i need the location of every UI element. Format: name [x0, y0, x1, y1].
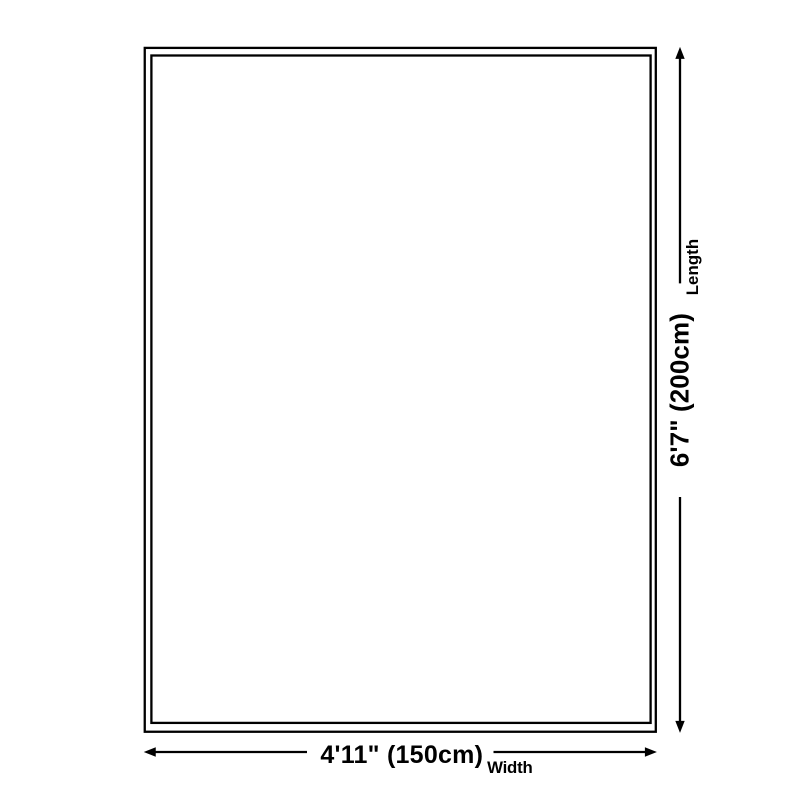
svg-text:Width: Width — [487, 758, 532, 777]
svg-text:4'11" (150cm): 4'11" (150cm) — [320, 741, 483, 769]
svg-text:Length: Length — [683, 239, 702, 296]
svg-text:6'7" (200cm): 6'7" (200cm) — [665, 313, 695, 467]
